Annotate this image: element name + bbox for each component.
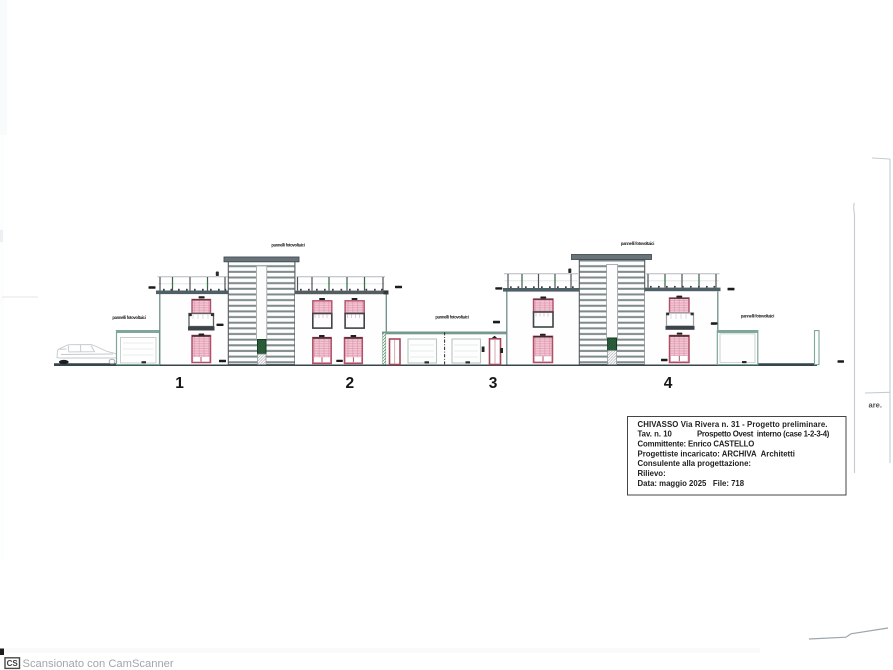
svg-text:Consulente alla progettazione:: Consulente alla progettazione:: [638, 459, 752, 468]
svg-text:are.: are.: [869, 401, 883, 410]
svg-text:2: 2: [345, 375, 354, 392]
svg-text:Committente: Enrico CASTELLO: Committente: Enrico CASTELLO: [638, 439, 755, 448]
svg-text:Tav. n. 10: Tav. n. 10: [638, 430, 673, 439]
svg-text:pannelli fotovoltaici: pannelli fotovoltaici: [271, 243, 304, 248]
svg-text:CS: CS: [7, 659, 19, 668]
svg-text:Prospetto Ovest interno (case: Prospetto Ovest interno (case 1-2-3-4): [697, 430, 830, 439]
svg-text:pannelli fotovoltaici: pannelli fotovoltaici: [741, 313, 774, 318]
svg-text:Rilievo:: Rilievo:: [638, 469, 666, 478]
svg-text:Progettiste incaricato: ARCHIV: Progettiste incaricato: ARCHIVA Architet…: [638, 449, 795, 458]
svg-text:Scansionato con CamScanner: Scansionato con CamScanner: [23, 658, 174, 670]
svg-text:Data: maggio 2025 File: 718: Data: maggio 2025 File: 718: [638, 479, 745, 488]
svg-text:pannelli fotovoltaici: pannelli fotovoltaici: [112, 315, 145, 320]
svg-text:1: 1: [175, 375, 184, 392]
svg-text:CHIVASSO Via Rivera n. 31 - Pr: CHIVASSO Via Rivera n. 31 - Progetto pre…: [638, 420, 828, 429]
svg-text:pannelli fotovoltaici: pannelli fotovoltaici: [435, 314, 468, 319]
svg-text:3: 3: [489, 375, 498, 392]
svg-text:4: 4: [664, 375, 673, 392]
svg-text:pannelli fotovoltaici: pannelli fotovoltaici: [621, 241, 654, 246]
